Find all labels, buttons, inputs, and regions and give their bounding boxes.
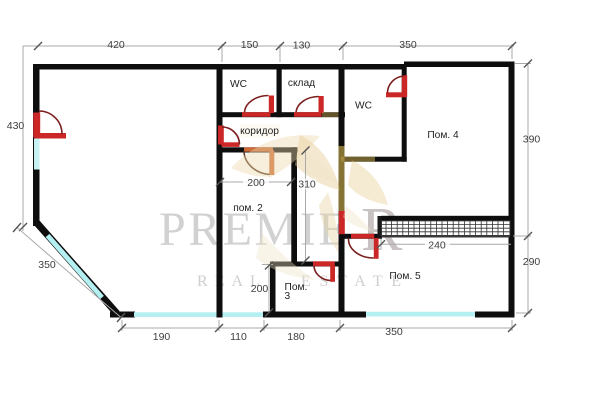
svg-text:190: 190 bbox=[153, 331, 171, 343]
svg-text:110: 110 bbox=[230, 331, 247, 343]
svg-text:коридор: коридор bbox=[240, 126, 279, 137]
svg-text:350: 350 bbox=[385, 326, 403, 338]
svg-text:290: 290 bbox=[523, 256, 541, 268]
svg-text:390: 390 bbox=[523, 134, 541, 146]
svg-text:WC: WC bbox=[230, 79, 247, 90]
svg-text:350: 350 bbox=[38, 259, 56, 271]
svg-text:150: 150 bbox=[241, 39, 259, 51]
svg-text:склад: склад bbox=[288, 78, 315, 89]
svg-text:430: 430 bbox=[7, 120, 25, 132]
svg-text:пом. 2: пом. 2 bbox=[233, 203, 263, 214]
svg-text:WC: WC bbox=[355, 101, 372, 112]
svg-text:180: 180 bbox=[287, 331, 305, 343]
svg-text:310: 310 bbox=[298, 179, 316, 191]
svg-text:200: 200 bbox=[247, 177, 265, 189]
svg-text:350: 350 bbox=[399, 39, 417, 51]
svg-text:240: 240 bbox=[428, 240, 446, 252]
svg-text:420: 420 bbox=[107, 39, 125, 51]
svg-text:200: 200 bbox=[251, 283, 269, 295]
svg-text:Пом. 5: Пом. 5 bbox=[389, 271, 421, 282]
svg-text:Пом. 4: Пом. 4 bbox=[427, 130, 459, 141]
svg-text:130: 130 bbox=[293, 40, 311, 52]
svg-text:3: 3 bbox=[285, 291, 291, 302]
